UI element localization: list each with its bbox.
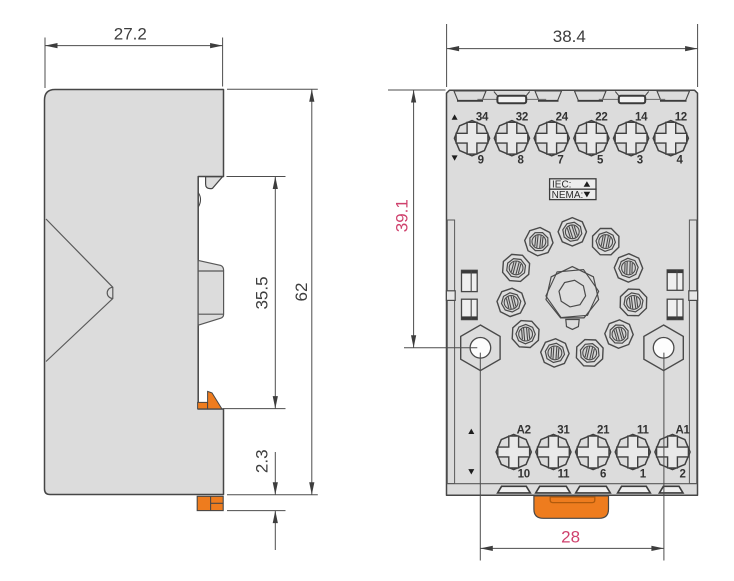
svg-text:6: 6 [600, 469, 606, 481]
svg-text:11: 11 [558, 469, 570, 481]
svg-text:NEMA:: NEMA: [552, 190, 584, 201]
svg-text:21: 21 [597, 425, 610, 437]
svg-text:4: 4 [676, 154, 683, 166]
svg-text:A2: A2 [517, 425, 531, 437]
svg-text:22: 22 [595, 112, 607, 124]
svg-text:39.1: 39.1 [392, 199, 411, 232]
svg-text:9: 9 [478, 154, 484, 166]
svg-text:28: 28 [561, 527, 580, 546]
svg-text:A1: A1 [675, 425, 690, 437]
svg-text:32: 32 [516, 112, 528, 124]
svg-text:24: 24 [556, 112, 569, 124]
svg-text:10: 10 [518, 469, 530, 481]
svg-text:7: 7 [557, 154, 563, 166]
svg-text:27.2: 27.2 [114, 24, 147, 43]
svg-text:14: 14 [635, 112, 648, 124]
svg-text:35.5: 35.5 [253, 276, 272, 309]
svg-text:12: 12 [675, 112, 687, 124]
svg-text:5: 5 [597, 154, 604, 166]
svg-text:62: 62 [292, 283, 311, 302]
svg-text:8: 8 [518, 154, 525, 166]
svg-text:31: 31 [557, 425, 570, 437]
svg-text:3: 3 [637, 154, 643, 166]
svg-text:11: 11 [637, 425, 649, 437]
svg-text:IEC:: IEC: [552, 179, 571, 190]
svg-text:2.3: 2.3 [253, 449, 272, 473]
svg-text:38.4: 38.4 [553, 27, 586, 46]
svg-text:2: 2 [679, 469, 685, 481]
svg-text:34: 34 [476, 112, 489, 124]
svg-text:1: 1 [640, 469, 647, 481]
